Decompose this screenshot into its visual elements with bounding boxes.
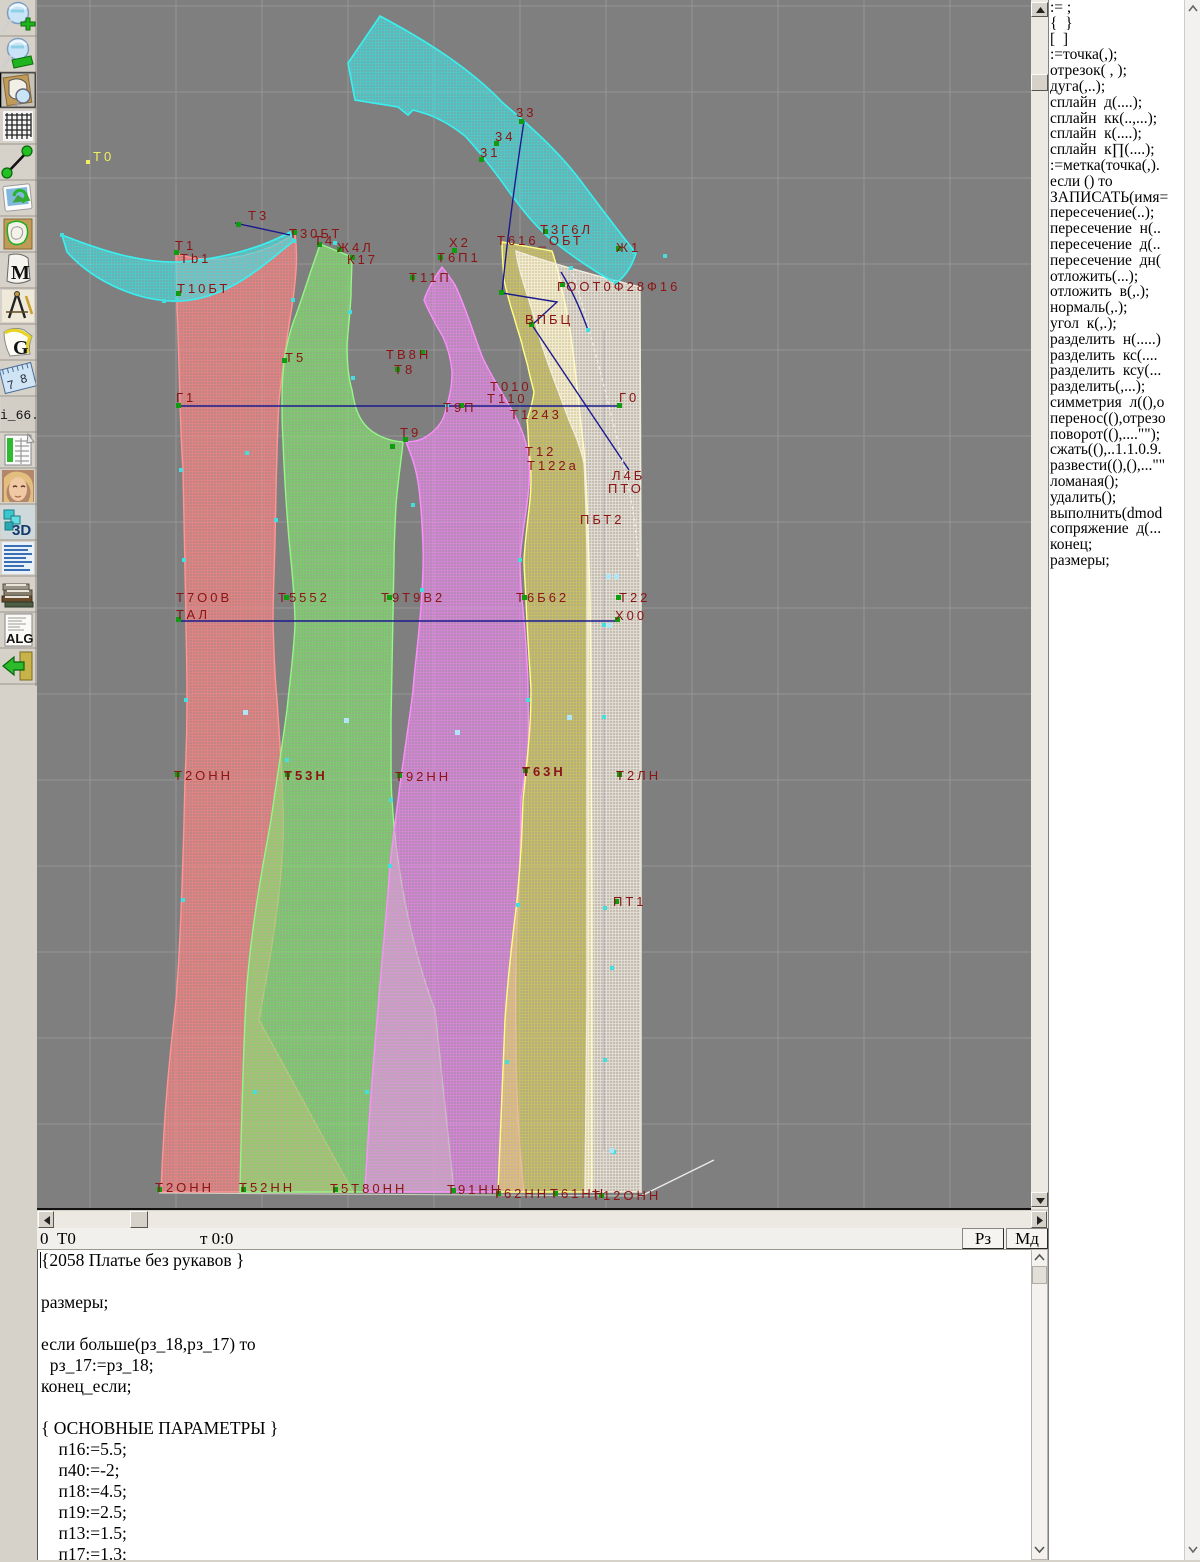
svg-text:Т5Т80НН: Т5Т80НН [330,1181,407,1196]
svg-text:Х00: Х00 [615,608,647,623]
svg-text:Т52НН: Т52НН [239,1180,295,1195]
svg-text:Т2ОНН: Т2ОНН [155,1180,214,1195]
svg-text:Т22: Т22 [619,590,650,605]
svg-text:Т9: Т9 [400,425,421,440]
svg-text:i_66.: i_66. [0,408,37,423]
svg-text:ВПБЦ: ВПБЦ [525,312,573,327]
svg-text:3D: 3D [12,522,31,539]
svg-text:Т2ЛН: Т2ЛН [616,768,661,783]
svg-text:Т9П: Т9П [443,400,477,415]
svg-text:Т62НН: Т62НН [493,1186,549,1201]
svg-text:ПТО: ПТО [608,481,644,496]
svg-text:Т6Б62: Т6Б62 [516,590,569,605]
svg-text:Т5552: Т5552 [278,590,330,605]
svg-text:ГООТ0Ф28Ф16: ГООТ0Ф28Ф16 [557,279,680,294]
svg-text:Т53Н: Т53Н [284,768,328,783]
svg-text:Т10БТ: Т10БТ [177,281,230,296]
svg-text:ТВ8Н: ТВ8Н [386,347,431,362]
svg-text:G: G [13,337,29,359]
svg-text:Т110: Т110 [487,391,528,406]
svg-text:ПБТ2: ПБТ2 [580,512,624,527]
svg-text:Т4: Т4 [314,233,335,248]
svg-text:Т6П1: Т6П1 [437,250,481,265]
svg-text:К17: К17 [347,252,378,267]
svg-text:Т5: Т5 [285,350,306,365]
svg-text:ALG: ALG [6,631,33,646]
svg-text:Т0: Т0 [93,149,114,164]
svg-text:Т92НН: Т92НН [395,769,451,784]
svg-text:Х2: Х2 [449,235,471,250]
svg-text:Ж1: Ж1 [616,240,641,255]
svg-text:ПТ1: ПТ1 [613,894,647,909]
svg-text:Т12: Т12 [525,444,556,459]
svg-text:Т12ОНН: Т12ОНН [592,1188,661,1203]
svg-text:Т122а: Т122а [527,458,579,473]
svg-text:Тb1: Тb1 [180,251,211,266]
svg-text:Т7О0В: Т7О0В [176,590,232,605]
svg-text:ТАЛ: ТАЛ [176,607,210,622]
svg-text:Т8: Т8 [394,362,415,377]
svg-text:M: M [11,262,30,284]
svg-text:34: 34 [495,129,515,144]
svg-text:Г0: Г0 [619,390,639,405]
svg-text:Т1243: Т1243 [510,407,562,422]
svg-text:33: 33 [516,105,536,120]
svg-text:Т9Т9В2: Т9Т9В2 [381,590,445,605]
svg-text:31: 31 [480,145,500,160]
svg-text:Т2ОНН: Т2ОНН [174,768,233,783]
svg-text:Т3Г6Л: Т3Г6Л [540,222,593,237]
svg-text:Г1: Г1 [176,390,196,405]
svg-text:Т3: Т3 [248,208,269,223]
svg-text:Т11П: Т11П [409,270,452,285]
svg-text:Т63Н: Т63Н [522,764,566,779]
